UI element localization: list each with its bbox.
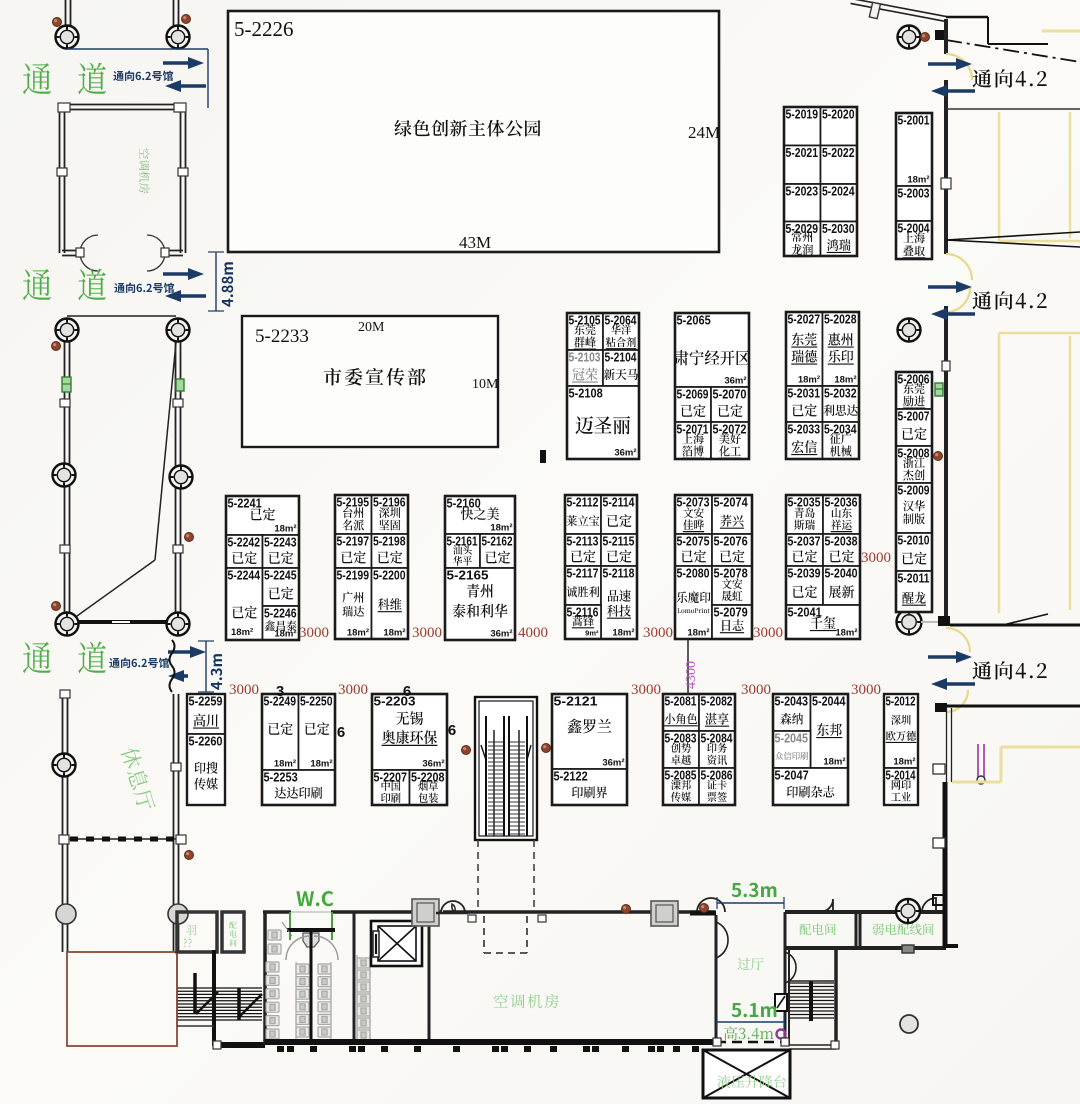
- svg-text:3000: 3000: [338, 682, 368, 698]
- svg-text:5-2071: 5-2071: [677, 422, 709, 437]
- svg-text:5-2207: 5-2207: [374, 770, 408, 785]
- svg-text:5-2114: 5-2114: [603, 495, 636, 510]
- svg-text:5-2033: 5-2033: [788, 422, 821, 437]
- svg-text:5-2085: 5-2085: [665, 768, 697, 783]
- svg-text:5-2074: 5-2074: [714, 495, 749, 510]
- svg-text:5-2029: 5-2029: [786, 221, 819, 236]
- svg-text:3000: 3000: [753, 625, 783, 641]
- svg-text:5-2019: 5-2019: [786, 107, 819, 122]
- svg-text:18m²: 18m²: [274, 629, 296, 640]
- svg-text:43M: 43M: [459, 233, 491, 252]
- svg-text:18m²: 18m²: [347, 628, 369, 639]
- svg-text:5-2045: 5-2045: [775, 731, 809, 746]
- svg-text:5-2022: 5-2022: [822, 145, 855, 160]
- svg-text:5-2007: 5-2007: [898, 409, 930, 424]
- svg-text:18m²: 18m²: [490, 523, 512, 534]
- svg-text:5-2030: 5-2030: [822, 221, 855, 236]
- svg-text:36m²: 36m²: [422, 759, 444, 770]
- svg-text:3000: 3000: [299, 625, 329, 641]
- svg-text:5-2103: 5-2103: [569, 350, 601, 365]
- svg-text:3000: 3000: [631, 682, 661, 698]
- svg-text:4000: 4000: [518, 625, 548, 641]
- svg-text:5-2047: 5-2047: [775, 768, 809, 783]
- svg-text:5-2004: 5-2004: [898, 221, 931, 236]
- svg-text:3: 3: [276, 683, 284, 700]
- svg-text:5-2073: 5-2073: [677, 495, 710, 510]
- svg-text:5-2010: 5-2010: [898, 533, 930, 548]
- svg-text:5-2012: 5-2012: [886, 694, 916, 709]
- svg-text:5-2250: 5-2250: [300, 694, 333, 709]
- svg-text:5-2162: 5-2162: [482, 534, 513, 549]
- svg-text:18m²: 18m²: [612, 628, 634, 639]
- svg-text:3000: 3000: [643, 625, 673, 641]
- svg-text:5-2081: 5-2081: [665, 694, 697, 709]
- svg-text:5-2070: 5-2070: [713, 387, 747, 402]
- svg-text:5-2259: 5-2259: [189, 694, 223, 709]
- svg-text:18m²: 18m²: [798, 375, 820, 386]
- svg-text:5-2008: 5-2008: [898, 446, 930, 461]
- svg-text:24M: 24M: [688, 123, 720, 142]
- svg-text:5-2233: 5-2233: [255, 326, 309, 347]
- svg-text:5-2260: 5-2260: [189, 734, 223, 749]
- svg-text:6: 6: [448, 722, 456, 739]
- svg-text:36m²: 36m²: [724, 376, 746, 387]
- svg-text:6: 6: [403, 683, 411, 700]
- svg-text:5-2072: 5-2072: [713, 422, 747, 437]
- svg-text:5-2001: 5-2001: [898, 113, 930, 128]
- svg-text:5-2044: 5-2044: [812, 694, 846, 709]
- svg-text:5-2080: 5-2080: [677, 566, 710, 581]
- svg-text:5-2116: 5-2116: [567, 605, 599, 620]
- svg-text:5-2117: 5-2117: [567, 566, 599, 581]
- svg-text:18m²: 18m²: [274, 524, 296, 535]
- svg-text:5-2112: 5-2112: [567, 495, 599, 510]
- svg-text:18m²: 18m²: [310, 759, 332, 770]
- svg-text:5-2041: 5-2041: [788, 605, 822, 620]
- svg-text:9m²: 9m²: [585, 629, 599, 638]
- svg-text:36m²: 36m²: [490, 629, 512, 640]
- svg-text:5-2244: 5-2244: [228, 568, 261, 583]
- svg-text:5-2165: 5-2165: [447, 568, 489, 583]
- svg-text:5-2246: 5-2246: [264, 606, 297, 621]
- svg-text:18m²: 18m²: [687, 628, 709, 639]
- svg-text:5-2075: 5-2075: [677, 534, 710, 549]
- svg-text:3000: 3000: [229, 682, 259, 698]
- svg-text:5-2027: 5-2027: [788, 312, 821, 327]
- svg-text:5-2243: 5-2243: [264, 535, 297, 550]
- svg-text:5-2035: 5-2035: [788, 495, 821, 510]
- svg-text:5-2021: 5-2021: [786, 145, 819, 160]
- svg-text:5-2122: 5-2122: [554, 769, 588, 784]
- svg-text:5-2032: 5-2032: [824, 386, 857, 401]
- svg-text:6: 6: [337, 724, 345, 741]
- svg-text:5-2006: 5-2006: [898, 372, 930, 387]
- svg-text:18m²: 18m²: [823, 757, 845, 768]
- svg-text:5-2020: 5-2020: [822, 107, 855, 122]
- svg-text:5-2009: 5-2009: [898, 483, 930, 498]
- svg-text:5-2040: 5-2040: [825, 566, 858, 581]
- svg-text:5-2200: 5-2200: [373, 568, 406, 583]
- svg-text:5-2199: 5-2199: [337, 568, 370, 583]
- svg-text:5-2253: 5-2253: [264, 770, 298, 785]
- svg-text:5-2161: 5-2161: [447, 534, 478, 549]
- svg-text:5-2031: 5-2031: [788, 386, 821, 401]
- svg-text:5-2028: 5-2028: [824, 312, 857, 327]
- svg-text:5-2242: 5-2242: [228, 535, 261, 550]
- svg-text:18m²: 18m²: [907, 175, 929, 186]
- svg-text:20M: 20M: [358, 320, 385, 335]
- svg-text:5-2069: 5-2069: [677, 387, 709, 402]
- svg-text:10M: 10M: [472, 377, 499, 392]
- svg-text:5-2036: 5-2036: [825, 495, 858, 510]
- svg-text:36m²: 36m²: [602, 758, 624, 769]
- svg-text:5-2241: 5-2241: [228, 496, 262, 511]
- svg-text:3000: 3000: [741, 682, 771, 698]
- svg-text:5-2226: 5-2226: [234, 17, 294, 41]
- svg-text:5-2043: 5-2043: [775, 694, 809, 709]
- svg-text:36m²: 36m²: [614, 448, 636, 459]
- svg-text:5-2108: 5-2108: [569, 386, 603, 401]
- svg-text:5-2014: 5-2014: [886, 768, 917, 783]
- svg-text:5-2121: 5-2121: [554, 694, 598, 709]
- svg-text:5-2011: 5-2011: [898, 571, 930, 586]
- svg-text:5-2039: 5-2039: [788, 566, 821, 581]
- svg-text:18m²: 18m²: [383, 628, 405, 639]
- svg-text:5-2104: 5-2104: [605, 350, 638, 365]
- svg-text:5-2115: 5-2115: [603, 534, 635, 549]
- svg-text:3000: 3000: [412, 625, 442, 641]
- svg-text:18m²: 18m²: [835, 628, 857, 639]
- svg-text:5-2208: 5-2208: [411, 770, 445, 785]
- svg-text:5-2082: 5-2082: [701, 694, 733, 709]
- svg-text:5-2024: 5-2024: [822, 184, 855, 199]
- svg-text:5-2113: 5-2113: [567, 534, 599, 549]
- svg-text:5-2245: 5-2245: [264, 568, 297, 583]
- svg-text:5-2198: 5-2198: [373, 534, 406, 549]
- svg-text:18m²: 18m²: [834, 375, 856, 386]
- svg-text:5-2037: 5-2037: [788, 534, 821, 549]
- svg-text:5-2023: 5-2023: [786, 184, 819, 199]
- svg-text:5-2083: 5-2083: [665, 731, 697, 746]
- svg-text:5-2064: 5-2064: [605, 313, 638, 328]
- svg-text:4300: 4300: [684, 661, 699, 689]
- svg-text:5-2065: 5-2065: [677, 313, 711, 328]
- svg-text:18m²: 18m²: [231, 627, 253, 638]
- svg-text:18m²: 18m²: [274, 759, 296, 770]
- svg-text:3000: 3000: [851, 682, 881, 698]
- svg-text:5-2038: 5-2038: [825, 534, 858, 549]
- svg-text:5-2105: 5-2105: [569, 313, 601, 328]
- svg-text:5-2034: 5-2034: [824, 422, 857, 437]
- svg-text:5-2086: 5-2086: [701, 768, 733, 783]
- svg-text:5-2196: 5-2196: [373, 495, 406, 510]
- svg-text:5-2078: 5-2078: [714, 566, 748, 581]
- svg-text:5-2003: 5-2003: [898, 186, 930, 201]
- svg-text:5-2197: 5-2197: [337, 534, 370, 549]
- svg-text:18m²: 18m²: [893, 757, 915, 768]
- svg-text:5-2084: 5-2084: [701, 731, 734, 746]
- svg-text:5-2079: 5-2079: [714, 605, 748, 620]
- svg-text:5-2076: 5-2076: [714, 534, 748, 549]
- svg-text:5-2118: 5-2118: [603, 566, 635, 581]
- svg-text:5-2195: 5-2195: [337, 495, 370, 510]
- svg-text:3000: 3000: [861, 550, 891, 566]
